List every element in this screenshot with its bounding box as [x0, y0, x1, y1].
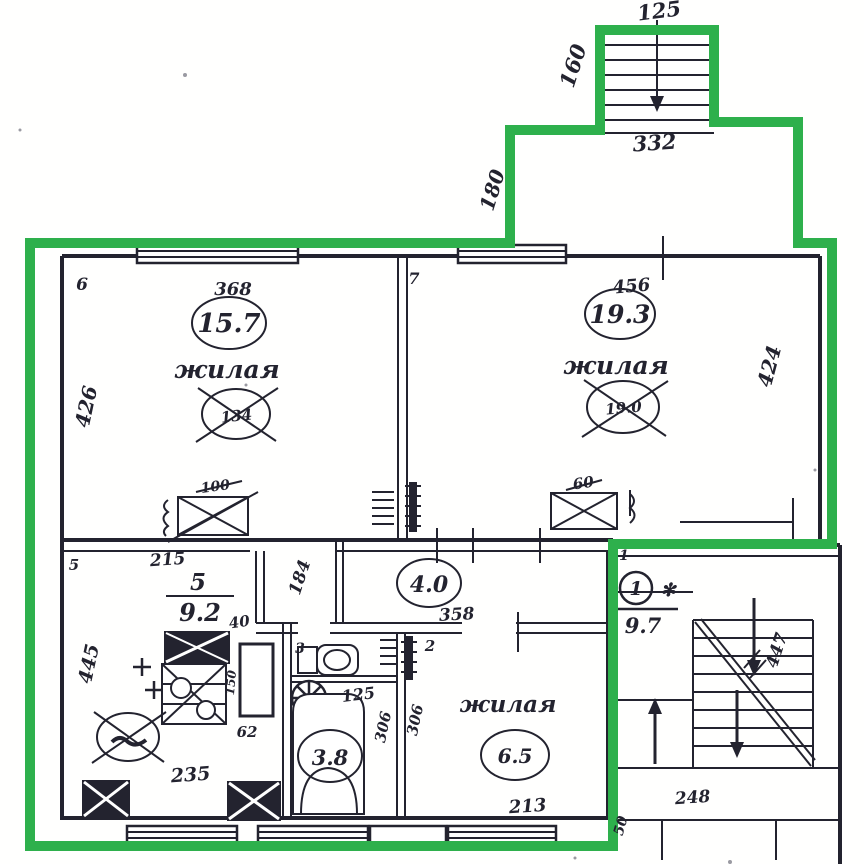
kitchen-corner-number: 5 — [69, 556, 79, 574]
kitchen-old-stove — [92, 712, 166, 763]
room2-bottom-dim: 213 — [507, 795, 547, 819]
bath-wall-dim-right: 306 — [403, 702, 427, 737]
room6-old-value: 134 — [220, 405, 253, 426]
kitchen-sink — [164, 631, 230, 664]
kitchen-vent-shaft-right — [227, 781, 281, 821]
wc-corner-number: 3 — [295, 641, 305, 657]
kitchen-bottom-dim: 235 — [169, 763, 211, 788]
bath-top-dim: 125 — [341, 683, 376, 706]
bath-wall-dim-left: 306 — [371, 709, 395, 744]
stairwell-asterisk: ✻ — [660, 580, 677, 601]
room7-corner-number: 7 — [408, 269, 419, 288]
room6-name: жилая — [174, 355, 279, 384]
divider-wall — [62, 528, 613, 563]
top-staircase — [600, 20, 714, 133]
stairwell-corner-number: 1 — [619, 548, 629, 564]
room7-corner-lines — [680, 498, 793, 540]
dim-vestibule-side: 180 — [475, 166, 510, 213]
arrow-down-icon — [730, 742, 744, 758]
hall-area: 4.0 — [410, 572, 449, 598]
bath-area: 3.8 — [312, 745, 349, 770]
hall-width-dim: 358 — [438, 604, 475, 626]
kitchen-top-dim: 215 — [148, 549, 186, 571]
room7-area: 19.3 — [590, 300, 651, 329]
kitchen-side-dim: 445 — [74, 642, 104, 685]
stairwell-area: 9.7 — [625, 613, 662, 638]
room7-side-dim: 424 — [752, 343, 786, 390]
door-hinge-squiggle — [164, 500, 169, 536]
dim-stair-side: 160 — [554, 41, 591, 91]
room7-top-dim: 456 — [612, 274, 652, 298]
room6-vent-dim: 100 — [200, 477, 231, 497]
chimney-hatch-upper — [372, 482, 421, 532]
stairwell-flight-dim: 447 — [762, 630, 792, 670]
hall-depth-dim: 184 — [285, 557, 315, 597]
kitchen-niche-dim: 62 — [237, 723, 258, 741]
toilet — [298, 645, 358, 675]
room2-name: жилая — [460, 691, 557, 718]
kitchen-cabinet — [240, 644, 273, 716]
room6-corner-number: 6 — [76, 275, 88, 295]
chimney-hatch-lower — [380, 636, 417, 680]
kitchen-door-dim: 40 — [228, 612, 252, 633]
kitchen-cross-marks — [133, 658, 163, 699]
room6-side-dim: 426 — [70, 384, 102, 430]
stairwell-unit-number: 1 — [629, 578, 642, 600]
kitchen-room-number: 5 — [190, 569, 206, 596]
door-hinge-squiggle — [630, 490, 635, 523]
floor-plan-svg: 125 160 332 180 6 368 15.7 жилая 134 426… — [0, 0, 864, 864]
dim-stair-landing: 332 — [632, 129, 677, 157]
kitchen-vent-shaft-left — [82, 780, 130, 818]
room7-vent-dim: 60 — [572, 473, 596, 494]
room6-area: 15.7 — [197, 309, 260, 339]
dim-stair-width: 125 — [636, 0, 683, 26]
floor-plan-scan: 125 160 332 180 6 368 15.7 жилая 134 426… — [0, 0, 864, 864]
kitchen-stove — [162, 664, 226, 724]
stairwell-bottom-dim: 248 — [673, 787, 711, 810]
room2-corner-number: 2 — [424, 637, 435, 655]
kitchen-cabinet-dim: 150 — [223, 669, 239, 696]
room7-name: жилая — [563, 351, 668, 380]
room7-old-value: 19.0 — [605, 397, 644, 418]
kitchen-area: 9.2 — [179, 598, 221, 627]
wall-room6-room7 — [398, 256, 407, 540]
stairwell-walls — [613, 545, 840, 864]
room2-area: 6.5 — [498, 744, 533, 768]
